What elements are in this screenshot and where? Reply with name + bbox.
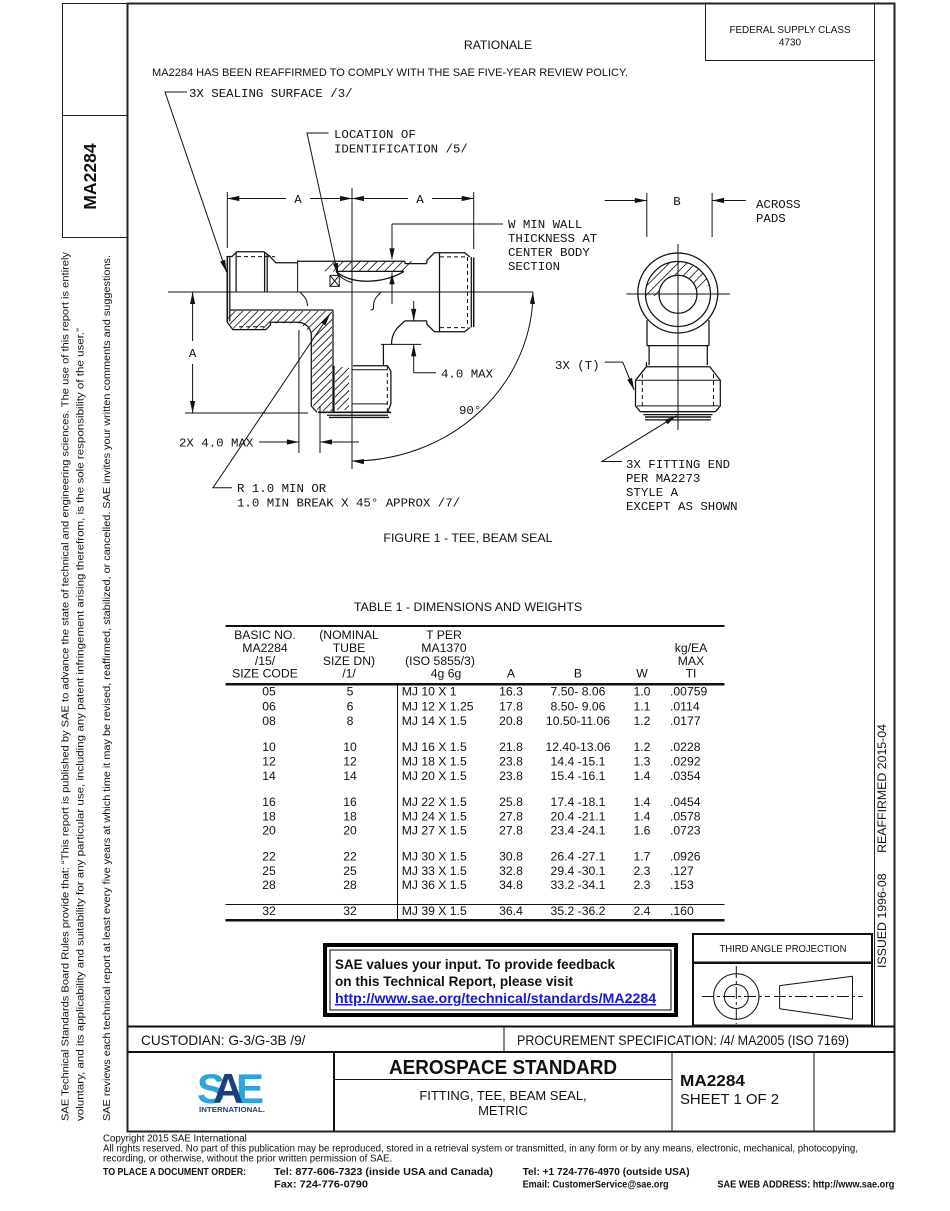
svg-text:1.0 MIN BREAK X 45° APPROX /7/: 1.0 MIN BREAK X 45° APPROX /7/ — [237, 497, 460, 511]
svg-text:MJ 12 X 1.25: MJ 12 X 1.25 — [402, 699, 474, 713]
svg-text:TABLE 1 - DIMENSIONS AND WEIGH: TABLE 1 - DIMENSIONS AND WEIGHTS — [354, 600, 582, 614]
svg-text:.160: .160 — [670, 904, 694, 918]
svg-text:MJ 36 X 1.5: MJ 36 X 1.5 — [402, 878, 467, 892]
svg-text:32: 32 — [343, 904, 357, 918]
svg-text:EXCEPT AS SHOWN: EXCEPT AS SHOWN — [626, 500, 738, 514]
svg-text:MJ 16 X 1.5: MJ 16 X 1.5 — [402, 740, 467, 754]
svg-text:MJ 20 X 1.5: MJ 20 X 1.5 — [402, 769, 467, 783]
svg-text:R 1.0 MIN OR: R 1.0 MIN OR — [237, 482, 327, 496]
svg-text:FITTING, TEE, BEAM SEAL,: FITTING, TEE, BEAM SEAL, — [419, 1088, 586, 1103]
svg-text:SECTION: SECTION — [508, 260, 560, 274]
svg-text:W: W — [636, 667, 648, 681]
svg-text:on this Technical Report, plea: on this Technical Report, please visit — [335, 974, 573, 990]
svg-text:SAE reviews each technical rep: SAE reviews each technical report at lea… — [102, 255, 113, 1121]
svg-text:A: A — [189, 347, 197, 361]
svg-text:.0578: .0578 — [670, 810, 701, 824]
svg-text:29.4 -30.1: 29.4 -30.1 — [551, 864, 606, 878]
svg-text:A: A — [416, 193, 424, 207]
svg-text:INTERNATIONAL.: INTERNATIONAL. — [199, 1107, 265, 1114]
svg-text:10.50-11.06: 10.50-11.06 — [546, 714, 610, 728]
svg-text:4730: 4730 — [779, 38, 802, 49]
svg-text:27.8: 27.8 — [499, 810, 523, 824]
svg-text:10: 10 — [262, 740, 276, 754]
svg-text:.0114: .0114 — [670, 699, 700, 713]
svg-text:/1/: /1/ — [342, 667, 356, 681]
svg-text:4.0 MAX: 4.0 MAX — [441, 368, 494, 382]
svg-text:22: 22 — [262, 850, 276, 864]
svg-text:MJ 18 X 1.5: MJ 18 X 1.5 — [402, 754, 467, 768]
svg-text:12.40-13.06: 12.40-13.06 — [545, 740, 610, 754]
svg-text:MJ 30 X 1.5: MJ 30 X 1.5 — [402, 850, 467, 864]
svg-text:W MIN WALL: W MIN WALL — [508, 218, 582, 232]
svg-text:TI: TI — [686, 667, 697, 681]
svg-text:4g 6g: 4g 6g — [431, 667, 462, 681]
svg-text:8.50- 9.06: 8.50- 9.06 — [551, 699, 606, 713]
svg-text:25: 25 — [343, 864, 357, 878]
svg-text:.0723: .0723 — [670, 824, 701, 838]
svg-text:1.4: 1.4 — [634, 769, 651, 783]
svg-text:STYLE A: STYLE A — [626, 486, 679, 500]
svg-text:34.8: 34.8 — [499, 878, 523, 892]
svg-text:A: A — [294, 193, 302, 207]
svg-text:SIZE CODE: SIZE CODE — [232, 667, 298, 681]
svg-text:MA2284: MA2284 — [80, 143, 100, 209]
svg-text:.0454: .0454 — [670, 795, 701, 809]
svg-text:MJ 10 X 1: MJ 10 X 1 — [402, 685, 457, 699]
svg-text:1.7: 1.7 — [634, 850, 651, 864]
svg-text:28: 28 — [343, 878, 357, 892]
svg-text:3X SEALING SURFACE /3/: 3X SEALING SURFACE /3/ — [189, 87, 353, 101]
svg-text:A: A — [507, 667, 516, 681]
svg-text:8: 8 — [347, 714, 354, 728]
svg-text:2.3: 2.3 — [634, 864, 651, 878]
svg-text:SHEET 1 OF 2: SHEET 1 OF 2 — [680, 1091, 779, 1108]
svg-text:12: 12 — [262, 754, 276, 768]
svg-text:20.4 -21.1: 20.4 -21.1 — [551, 810, 606, 824]
svg-text:1.3: 1.3 — [634, 754, 651, 768]
svg-text:MJ 14 X 1.5: MJ 14 X 1.5 — [402, 714, 467, 728]
svg-text:PROCUREMENT SPECIFICATION: /4/: PROCUREMENT SPECIFICATION: /4/ MA2005 (I… — [517, 1033, 849, 1048]
svg-text:18: 18 — [343, 810, 357, 824]
svg-text:27.8: 27.8 — [499, 824, 523, 838]
svg-text:08: 08 — [262, 714, 276, 728]
svg-text:MA2284: MA2284 — [680, 1073, 745, 1090]
svg-text:10: 10 — [343, 740, 357, 754]
svg-text:20: 20 — [343, 824, 357, 838]
svg-text:Fax: 724-776-0790: Fax: 724-776-0790 — [274, 1180, 368, 1191]
svg-text:B: B — [574, 667, 582, 681]
svg-text:.0292: .0292 — [670, 754, 701, 768]
svg-text:26.4 -27.1: 26.4 -27.1 — [551, 850, 606, 864]
svg-text:06: 06 — [262, 699, 276, 713]
svg-text:MJ 39 X 1.5: MJ 39 X 1.5 — [402, 904, 467, 918]
svg-text:1.1: 1.1 — [634, 699, 651, 713]
svg-text:28: 28 — [262, 878, 276, 892]
svg-text:.0177: .0177 — [670, 714, 701, 728]
svg-text:IDENTIFICATION /5/: IDENTIFICATION /5/ — [334, 143, 468, 157]
svg-text:20: 20 — [262, 824, 276, 838]
svg-text:CUSTODIAN: G-3/G-3B /9/: CUSTODIAN: G-3/G-3B /9/ — [141, 1033, 306, 1048]
svg-text:1.6: 1.6 — [634, 824, 651, 838]
svg-text:Tel: +1 724-776-4970 (outside: Tel: +1 724-776-4970 (outside USA) — [523, 1167, 690, 1178]
svg-text:14.4 -15.1: 14.4 -15.1 — [551, 754, 606, 768]
svg-text:12: 12 — [343, 754, 357, 768]
svg-text:20.8: 20.8 — [499, 714, 523, 728]
svg-text:SAE WEB ADDRESS: http://www.sa: SAE WEB ADDRESS: http://www.sae.org — [717, 1180, 894, 1191]
svg-text:voluntary, and its applicabili: voluntary, and its applicability and sui… — [76, 327, 87, 1121]
svg-text:MJ 24 X 1.5: MJ 24 X 1.5 — [402, 810, 467, 824]
svg-text:.127: .127 — [670, 864, 694, 878]
svg-text:1.0: 1.0 — [634, 685, 651, 699]
svg-text:MJ 22 X 1.5: MJ 22 X 1.5 — [402, 795, 467, 809]
svg-text:B: B — [673, 195, 680, 209]
svg-text:LOCATION OF: LOCATION OF — [334, 128, 416, 142]
svg-text:25: 25 — [262, 864, 276, 878]
svg-text:1.2: 1.2 — [634, 740, 651, 754]
svg-text:05: 05 — [262, 685, 276, 699]
svg-text:ACROSS: ACROSS — [756, 198, 801, 212]
svg-text:32: 32 — [262, 904, 276, 918]
svg-text:6: 6 — [347, 699, 354, 713]
svg-text:3X FITTING END: 3X FITTING END — [626, 458, 730, 472]
svg-text:PADS: PADS — [756, 212, 786, 226]
svg-text:Email: CustomerService@sae.org: Email: CustomerService@sae.org — [523, 1180, 669, 1191]
svg-text:7.50- 8.06: 7.50- 8.06 — [551, 685, 606, 699]
svg-text:14: 14 — [343, 769, 357, 783]
svg-text:23.8: 23.8 — [499, 754, 523, 768]
svg-text:2.3: 2.3 — [634, 878, 651, 892]
svg-text:90°: 90° — [459, 404, 481, 418]
svg-text:36.4: 36.4 — [499, 904, 523, 918]
svg-text:recording, or otherwise, witho: recording, or otherwise, without the pri… — [103, 1154, 392, 1165]
svg-text:MJ 27 X 1.5: MJ 27 X 1.5 — [402, 824, 467, 838]
svg-text:.0926: .0926 — [670, 850, 701, 864]
svg-text:21.8: 21.8 — [499, 740, 523, 754]
svg-text:1.2: 1.2 — [634, 714, 651, 728]
svg-text:16: 16 — [343, 795, 357, 809]
svg-text:MJ 33 X 1.5: MJ 33 X 1.5 — [402, 864, 467, 878]
svg-text:SAE values your input. To prov: SAE values your input. To provide feedba… — [335, 957, 615, 973]
svg-text:3X (T): 3X (T) — [555, 359, 600, 373]
svg-text:35.2 -36.2: 35.2 -36.2 — [551, 904, 606, 918]
svg-text:PER MA2273: PER MA2273 — [626, 472, 700, 486]
svg-text:TO PLACE A DOCUMENT ORDER:: TO PLACE A DOCUMENT ORDER: — [103, 1167, 246, 1178]
svg-text:16.3: 16.3 — [499, 685, 523, 699]
svg-text:17.8: 17.8 — [499, 699, 523, 713]
svg-text:A: A — [213, 1065, 243, 1112]
svg-text:Tel: 877-606-7323 (inside USA: Tel: 877-606-7323 (inside USA and Canada… — [274, 1167, 493, 1178]
svg-text:14: 14 — [262, 769, 276, 783]
svg-text:THICKNESS AT: THICKNESS AT — [508, 232, 597, 246]
svg-text:23.8: 23.8 — [499, 769, 523, 783]
svg-text:.00759: .00759 — [670, 685, 707, 699]
svg-text:MA2284 HAS BEEN REAFFIRMED TO: MA2284 HAS BEEN REAFFIRMED TO COMPLY WIT… — [152, 67, 628, 79]
svg-text:2.4: 2.4 — [634, 904, 651, 918]
svg-text:17.4 -18.1: 17.4 -18.1 — [551, 795, 606, 809]
svg-text:FEDERAL SUPPLY CLASS: FEDERAL SUPPLY CLASS — [729, 25, 851, 36]
svg-text:RATIONALE: RATIONALE — [464, 38, 532, 52]
svg-text:AEROSPACE STANDARD: AEROSPACE STANDARD — [389, 1057, 617, 1079]
svg-text:16: 16 — [262, 795, 276, 809]
svg-text:SAE Technical Standards Board: SAE Technical Standards Board Rules prov… — [61, 251, 72, 1121]
svg-text:5: 5 — [347, 685, 354, 699]
svg-text:18: 18 — [262, 810, 276, 824]
svg-text:32.8: 32.8 — [499, 864, 523, 878]
svg-text:.153: .153 — [670, 878, 694, 892]
svg-text:15.4 -16.1: 15.4 -16.1 — [551, 769, 606, 783]
svg-text:30.8: 30.8 — [499, 850, 523, 864]
svg-text:1.4: 1.4 — [634, 810, 651, 824]
svg-text:1.4: 1.4 — [634, 795, 651, 809]
svg-text:http://www.sae.org/technical/s: http://www.sae.org/technical/standards/M… — [335, 991, 656, 1007]
svg-text:FIGURE 1 - TEE, BEAM SEAL: FIGURE 1 - TEE, BEAM SEAL — [383, 531, 552, 545]
svg-text:CENTER BODY: CENTER BODY — [508, 246, 590, 260]
svg-text:ISSUED 1996-08 REAFFIRMED: ISSUED 1996-08 REAFFIRMED 2015-04 — [875, 724, 889, 968]
svg-text:25.8: 25.8 — [499, 795, 523, 809]
svg-text:METRIC: METRIC — [478, 1103, 528, 1118]
svg-text:.0228: .0228 — [670, 740, 701, 754]
svg-text:33.2 -34.1: 33.2 -34.1 — [551, 878, 606, 892]
svg-text:.0354: .0354 — [670, 769, 701, 783]
svg-text:22: 22 — [343, 850, 357, 864]
svg-text:THIRD ANGLE PROJECTION: THIRD ANGLE PROJECTION — [720, 944, 847, 955]
svg-text:23.4 -24.1: 23.4 -24.1 — [551, 824, 606, 838]
